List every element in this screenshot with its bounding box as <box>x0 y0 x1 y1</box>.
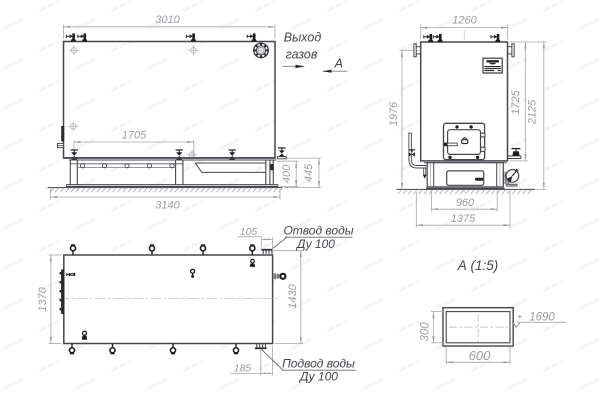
svg-text:Выход: Выход <box>284 31 322 45</box>
svg-text:Ду 100: Ду 100 <box>298 370 338 384</box>
svg-text:1370: 1370 <box>37 286 49 311</box>
svg-text:1690: 1690 <box>529 311 555 323</box>
svg-text:3140: 3140 <box>155 200 180 212</box>
svg-text:А (1:5): А (1:5) <box>457 258 499 273</box>
svg-text:1375: 1375 <box>451 213 476 225</box>
svg-text:Ду 100: Ду 100 <box>295 237 335 251</box>
svg-text:1705: 1705 <box>122 129 147 141</box>
svg-text:400: 400 <box>281 164 293 183</box>
svg-text:Отвод воды: Отвод воды <box>283 224 353 238</box>
svg-text:300: 300 <box>419 322 431 342</box>
svg-text:445: 445 <box>303 163 315 182</box>
svg-text:960: 960 <box>456 197 475 209</box>
svg-text:185: 185 <box>234 362 252 374</box>
svg-text:1725: 1725 <box>510 89 522 114</box>
svg-text:1430: 1430 <box>287 283 299 308</box>
svg-text:2125: 2125 <box>526 99 538 125</box>
svg-text:газов: газов <box>286 48 318 62</box>
svg-text:3010: 3010 <box>155 14 180 26</box>
svg-text:1976: 1976 <box>388 101 400 126</box>
svg-text:А: А <box>334 57 343 71</box>
svg-text:Подвод воды: Подвод воды <box>282 357 355 371</box>
svg-text:105: 105 <box>240 226 258 238</box>
svg-text:600: 600 <box>469 348 491 363</box>
svg-text:1260: 1260 <box>452 15 477 27</box>
